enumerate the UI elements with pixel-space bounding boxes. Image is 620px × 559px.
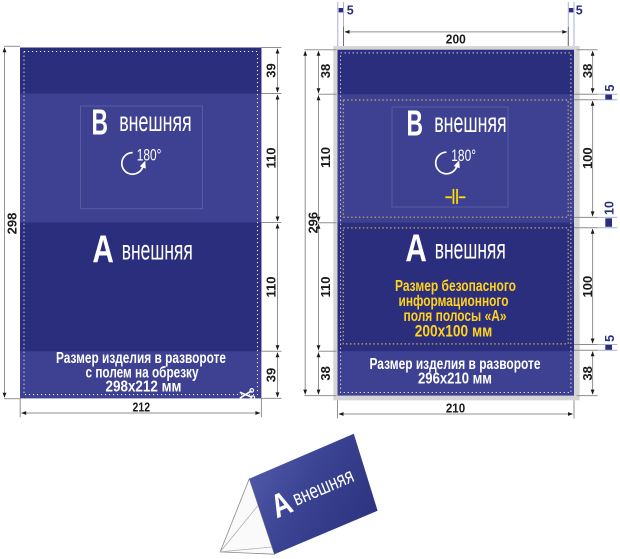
svg-text:внешняя: внешняя (119, 106, 192, 137)
svg-text:100: 100 (580, 276, 595, 298)
svg-text:В: В (92, 102, 109, 143)
svg-text:296х210 мм: 296х210 мм (418, 371, 492, 388)
svg-text:38: 38 (580, 64, 595, 78)
svg-text:А: А (92, 229, 114, 272)
svg-text:100: 100 (580, 147, 595, 169)
svg-text:180°: 180° (137, 145, 162, 164)
svg-text:10: 10 (603, 201, 617, 215)
svg-text:200: 200 (446, 31, 466, 46)
svg-text:210: 210 (446, 401, 465, 415)
svg-text:212: 212 (133, 401, 151, 415)
svg-text:200х100 мм: 200х100 мм (415, 322, 493, 340)
svg-text:110: 110 (264, 277, 279, 298)
svg-text:110: 110 (318, 277, 333, 298)
svg-text:38: 38 (580, 366, 595, 380)
svg-text:внешняя: внешняя (434, 107, 507, 138)
svg-text:внешняя: внешняя (435, 234, 506, 265)
svg-text:110: 110 (264, 148, 279, 169)
svg-text:38: 38 (318, 64, 333, 78)
svg-text:110: 110 (318, 147, 333, 168)
svg-text:39: 39 (264, 63, 279, 77)
svg-text:5: 5 (576, 3, 583, 17)
svg-text:5: 5 (603, 85, 617, 92)
svg-text:298: 298 (5, 213, 20, 235)
svg-text:5: 5 (347, 3, 354, 17)
svg-text:39: 39 (264, 368, 279, 382)
svg-text:38: 38 (318, 366, 333, 380)
svg-text:298х212 мм: 298х212 мм (106, 378, 182, 395)
svg-text:А: А (405, 228, 427, 271)
svg-text:180°: 180° (451, 146, 476, 165)
svg-text:внешняя: внешняя (122, 235, 193, 266)
svg-text:5: 5 (603, 335, 617, 342)
svg-text:В: В (407, 103, 424, 144)
